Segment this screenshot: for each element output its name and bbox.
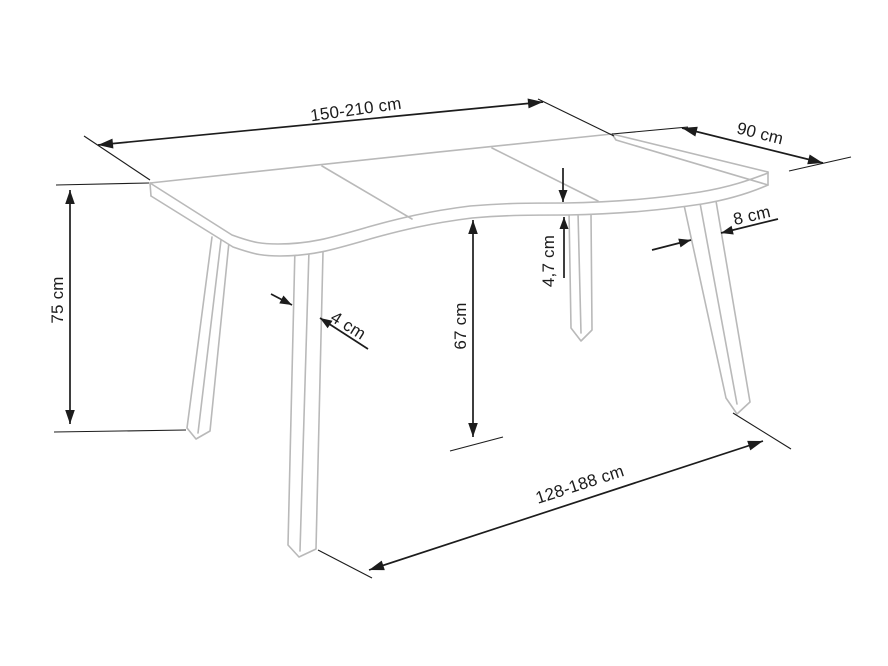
dim-arrow-base-span-head <box>369 561 385 571</box>
ext-line-base-left <box>318 550 372 578</box>
table-leg-back-left <box>187 237 229 439</box>
dim-arrow-left-leg-a-head <box>279 295 292 305</box>
table-line-drawing <box>0 0 888 666</box>
dim-label-underside-clearance: 67 cm <box>451 302 471 349</box>
tick-line-height-bottom <box>54 430 186 432</box>
table-leg-front-right <box>684 201 750 414</box>
dim-label-overall-height: 75 cm <box>48 276 68 323</box>
dim-arrow-top-depth-head <box>807 155 823 165</box>
dim-arrow-clearance-head <box>468 220 478 234</box>
dim-arrow-base-span-head <box>747 441 763 451</box>
dim-arrow-clearance-head <box>468 423 478 437</box>
ext-line-base-right <box>733 413 791 449</box>
dim-arrow-right-leg-a-head <box>678 239 691 248</box>
furniture-dimension-diagram: 150-210 cm 90 cm 8 cm 4,7 cm 67 cm 75 cm… <box>0 0 888 666</box>
dim-arrow-thickness-up-head <box>560 217 569 229</box>
table-leg-back-right <box>569 211 592 341</box>
dim-label-top-thickness: 4,7 cm <box>539 235 559 287</box>
tick-line-height-top <box>56 183 149 185</box>
ext-line-top-depth-right <box>789 157 851 171</box>
ext-line-top-depth-left <box>612 127 688 134</box>
dim-arrow-top-depth-head <box>682 127 698 137</box>
dim-arrow-base-span <box>369 441 763 570</box>
dim-arrow-height-head <box>65 190 75 204</box>
ext-line-top-length-right <box>538 99 614 136</box>
tick-line-floor <box>450 437 503 451</box>
table-leg-front-left <box>288 247 323 557</box>
dim-arrow-height-head <box>65 410 75 424</box>
dim-arrow-right-leg-b-head <box>721 226 734 235</box>
